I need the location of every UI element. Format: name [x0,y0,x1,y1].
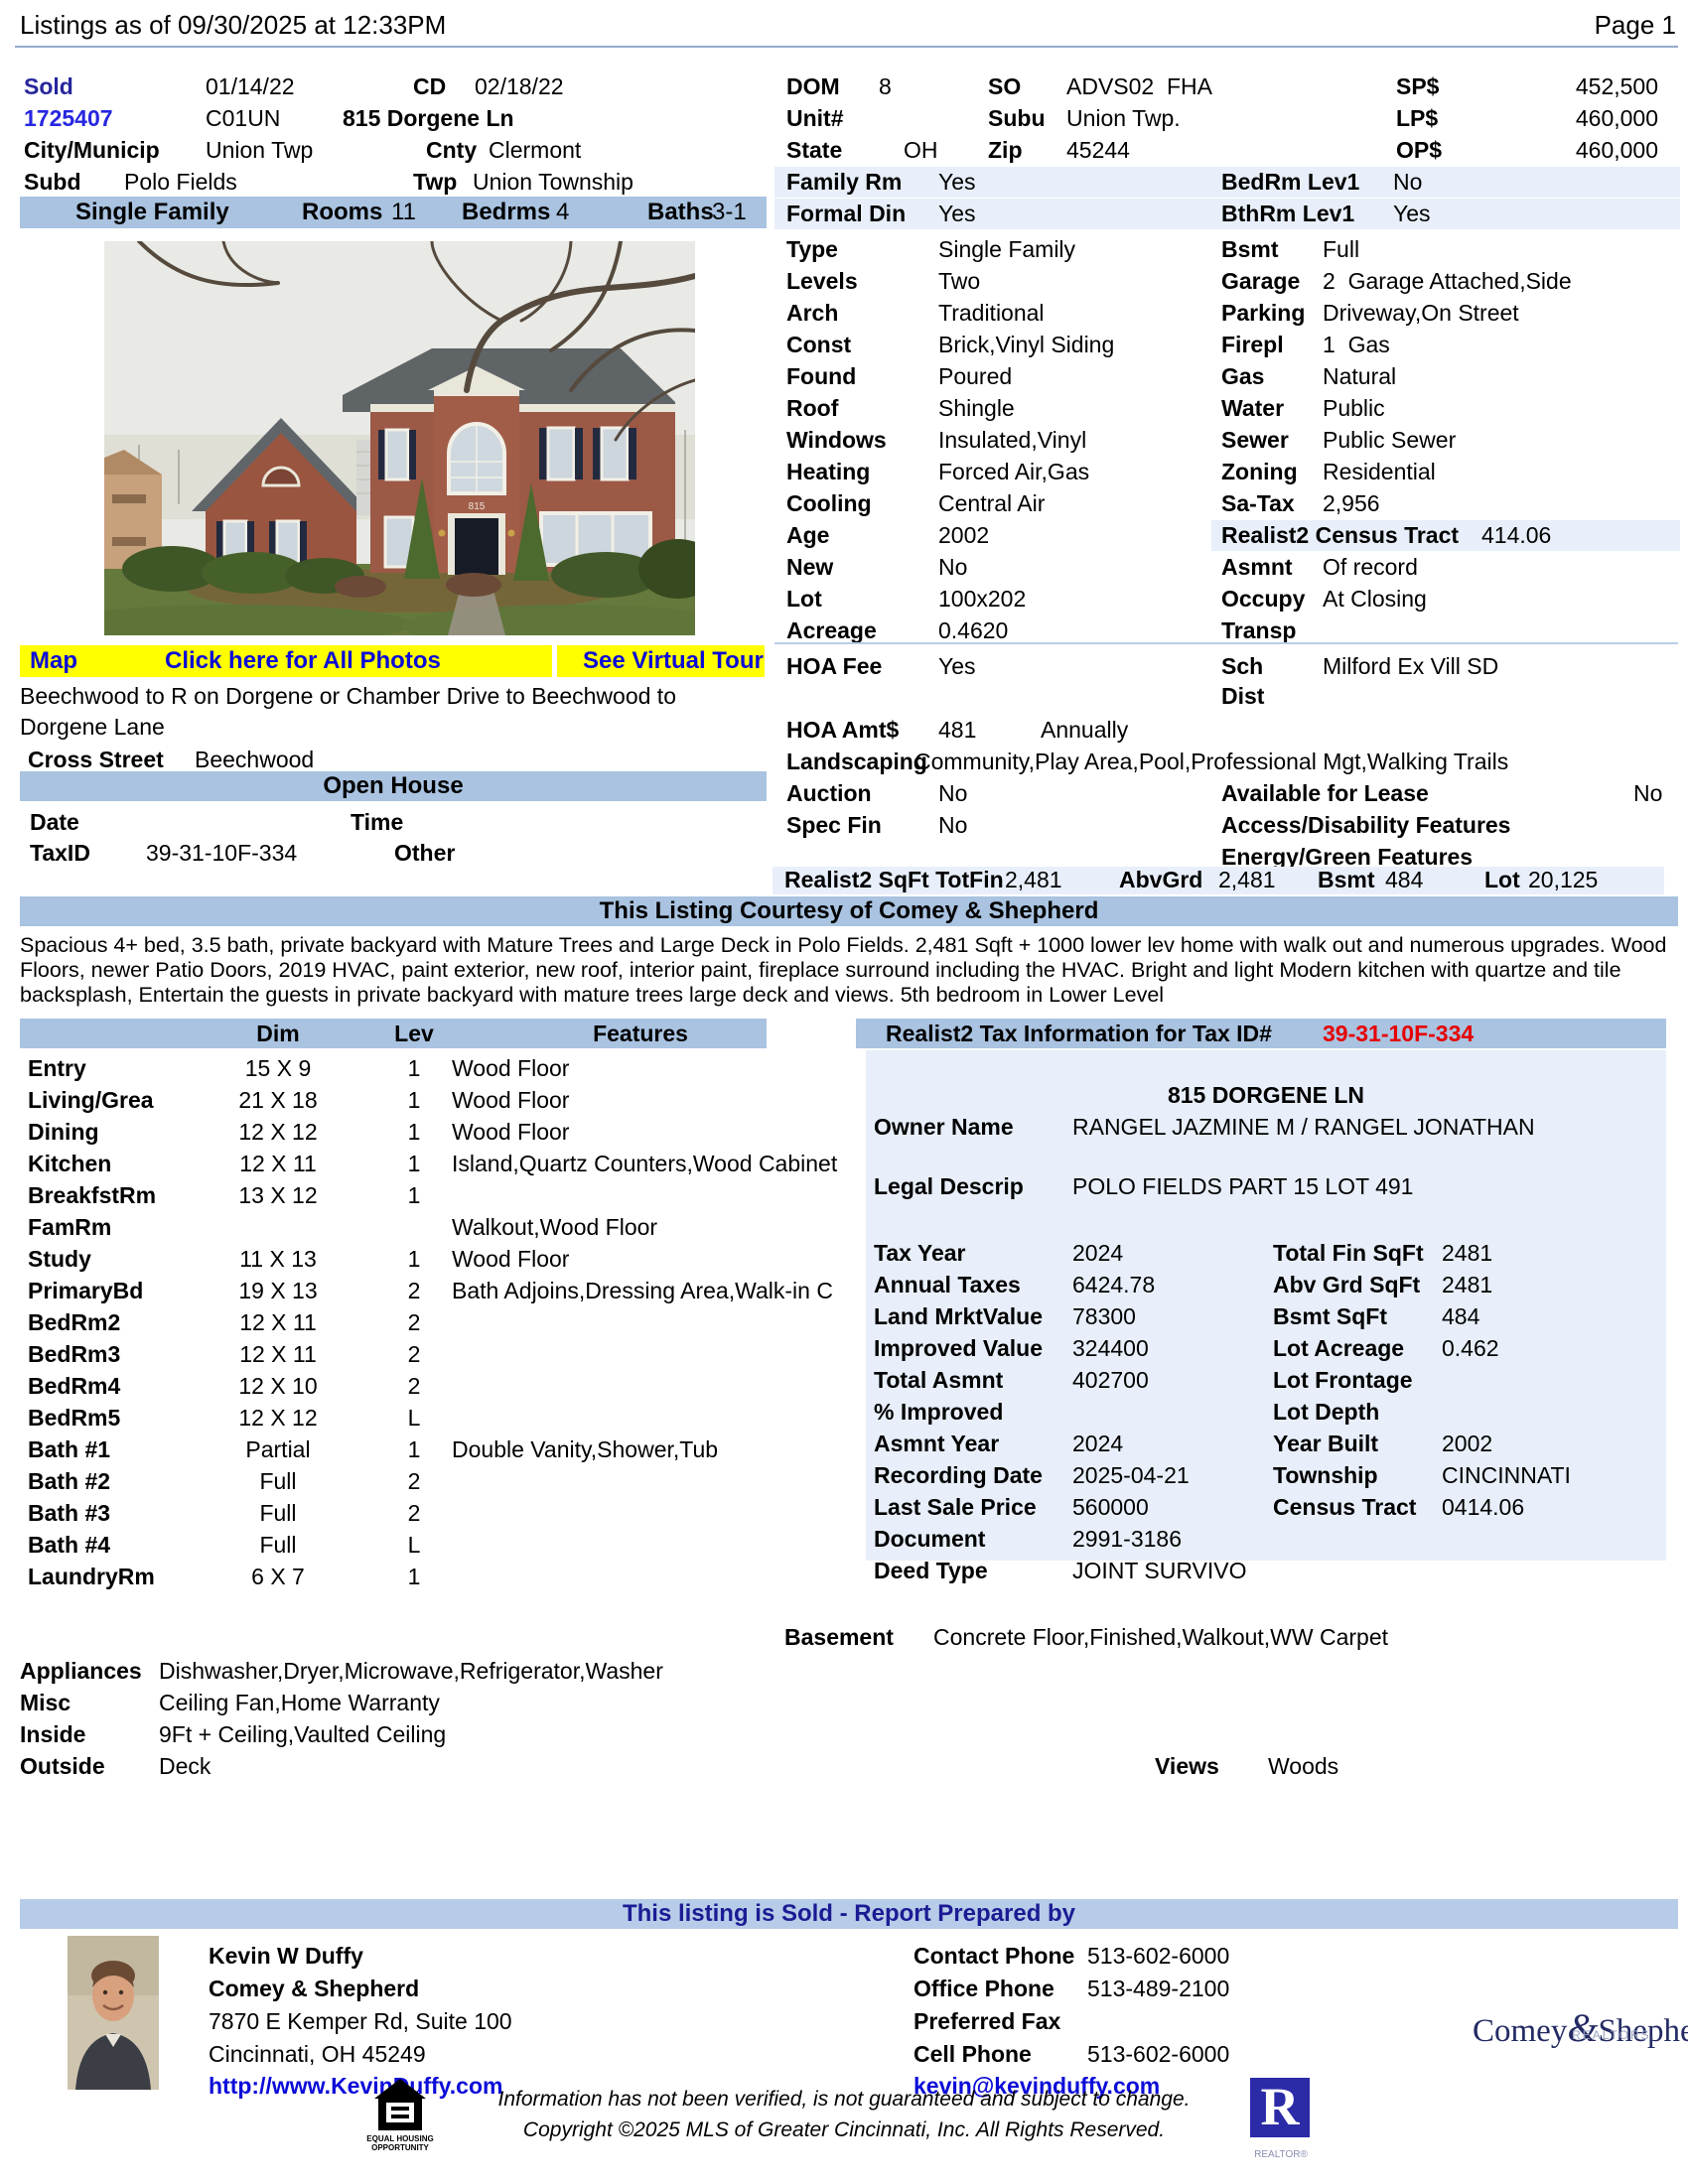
twp-value: Union Township [473,167,633,197]
field-label: Dining [28,1116,99,1148]
specfin-value: No [938,810,967,840]
field-value: 12 X 12 [159,1116,397,1148]
open-house-title: Open House [323,770,463,802]
room-row: BedRm412 X 102 [20,1370,767,1402]
area-code: C01UN [206,103,280,133]
page-number: Page 1 [1595,10,1676,40]
field-value: 1 [389,1179,439,1211]
tax-row: Abv Grd SqFt2481 [866,1269,1666,1300]
right-panel-row: Lot100x202OccupyAt Closing [774,584,1680,614]
auction-label: Auction [786,778,872,808]
tax-info-header: Realist2 Tax Information for Tax ID# 39-… [856,1019,1666,1048]
so-value: ADVS02 FHA [1066,71,1212,101]
right-panel-row: ArchTraditionalParkingDriveway,On Street [774,298,1680,329]
field-value: Partial [159,1433,397,1465]
field-value: Residential [1323,457,1436,487]
zip-value: 45244 [1066,135,1130,165]
field-value: 2481 [1442,1237,1492,1269]
city-value: Union Twp [206,135,313,165]
header-rule [15,46,1678,48]
field-value: Natural [1323,361,1396,392]
dom-value: 8 [879,71,892,101]
landscaping-label: Landscaping [786,747,927,776]
field-value: Shingle [938,393,1015,424]
field-label: Levels [786,266,858,297]
field-label: PrimaryBd [28,1275,143,1306]
room-row: PrimaryBd19 X 132Bath Adjoins,Dressing A… [20,1275,767,1306]
field-label: Bath #4 [28,1529,110,1561]
right-panel-row: Formal DinYesBthRm Lev1Yes [774,199,1680,229]
field-value: 1 [389,1116,439,1148]
legal-descrip-value: POLO FIELDS PART 15 LOT 491 [1072,1171,1413,1201]
field-label: Bath #2 [28,1465,110,1497]
photo-links-bar: Map Click here for All Photos See Virtua… [20,645,765,677]
field-value: 484 [1442,1300,1479,1332]
field-label: Entry [28,1052,86,1084]
realtor-logo: R [1249,2077,1311,2138]
hoa-divider [774,642,1678,644]
field-label: BedRm Lev1 [1221,167,1359,198]
open-house-band: Open House [20,771,767,801]
courtesy-text: This Listing Courtesy of Comey & Shepher… [600,895,1099,927]
field-label: Total Fin SqFt [1273,1237,1424,1269]
subd-value: Polo Fields [124,167,237,197]
open-house-date-label: Date [30,807,79,837]
room-row: FamRmWalkout,Wood Floor [20,1211,767,1243]
state-value: OH [904,135,938,165]
room-row: Entry15 X 91Wood Floor [20,1052,767,1084]
all-photos-link[interactable]: Click here for All Photos [165,645,441,677]
field-label: Bsmt [1221,234,1279,265]
agent-photo [68,1936,159,2090]
mls-number-link[interactable]: 1725407 [24,103,113,133]
tax-row: Lot Depth [866,1396,1666,1428]
field-label: Living/Grea [28,1084,154,1116]
inside-label: Inside [20,1719,85,1749]
agency-address2: Cincinnati, OH 45249 [209,2039,426,2069]
svg-text:R: R [1261,2077,1301,2136]
cd-date: 02/18/22 [475,71,564,101]
field-value: 2 [389,1497,439,1529]
field-label: Formal Din [786,199,906,229]
right-panel-row: HeatingForced Air,GasZoningResidential [774,457,1680,487]
cross-street-label: Cross Street [28,745,164,774]
field-label: BthRm Lev1 [1221,199,1354,229]
room-row: Kitchen12 X 111Island,Quartz Counters,Wo… [20,1148,767,1179]
field-label: Cooling [786,488,872,519]
field-value: 2 [389,1338,439,1370]
field-label: Bsmt SqFt [1273,1300,1387,1332]
field-value: 1 [389,1433,439,1465]
right-panel-row: WindowsInsulated,VinylSewerPublic Sewer [774,425,1680,456]
subd-label: Subd [24,167,81,197]
op-value: 460,000 [1519,135,1658,165]
state-label: State [786,135,842,165]
field-label: Abv Grd SqFt [1273,1269,1420,1300]
cross-street-value: Beechwood [195,745,314,774]
remarks-text: Spacious 4+ bed, 3.5 bath, private backy… [20,933,1670,1008]
status-badge: Sold [24,71,73,101]
field-value: 2481 [1442,1269,1492,1300]
lease-value: No [1633,778,1662,808]
field-label: Lot Acreage [1273,1332,1404,1364]
tax-row: TownshipCINCINNATI [866,1459,1666,1491]
right-panel-row: LevelsTwoGarage2 Garage Attached,Side [774,266,1680,297]
views-label: Views [1155,1751,1219,1781]
field-value: L [389,1529,439,1561]
right-panel-row: Age2002Realist2 Census Tract414.06 [774,520,1680,551]
field-value: Traditional [938,298,1045,329]
field-value: 11 X 13 [159,1243,397,1275]
field-value: Yes [1393,199,1431,229]
outside-label: Outside [20,1751,105,1781]
county-label: Cnty [426,135,477,165]
bsmt-sqft-value: 484 [1385,865,1423,894]
field-value: Insulated,Vinyl [938,425,1086,456]
subu-value: Union Twp. [1066,103,1181,133]
rooms-value: 11 [391,197,416,228]
field-value: Wood Floor [452,1052,569,1084]
tax-info-taxid: 39-31-10F-334 [1323,1019,1474,1048]
field-value: Brick,Vinyl Siding [938,330,1114,360]
field-value: 2002 [938,520,989,551]
field-value: 2002 [1442,1428,1492,1459]
tax-row: Year Built2002 [866,1428,1666,1459]
field-label: Document [874,1523,985,1555]
room-row: BedRm312 X 112 [20,1338,767,1370]
field-label: Zoning [1221,457,1298,487]
sqft-totfin: 2,481 [1005,865,1062,894]
agency-name: Comey & Shepherd [209,1974,419,2003]
property-type-band: Single Family Rooms 11 Bedrms 4 Baths 3-… [20,197,767,228]
field-value: Wood Floor [452,1243,569,1275]
field-label: Sa-Tax [1221,488,1295,519]
room-row: BedRm512 X 12L [20,1402,767,1433]
mls-listing-page: Listings as of 09/30/2025 at 12:33PM Pag… [0,0,1688,2184]
baths-label: Baths [647,197,714,228]
field-value: 100x202 [938,584,1026,614]
sp-value: 452,500 [1519,71,1658,101]
city-label: City/Municip [24,135,160,165]
views-value: Woods [1268,1751,1338,1781]
field-value: 13 X 12 [159,1179,397,1211]
realtor-caption: REALTOR® [1241,2140,1321,2170]
room-row: Bath #3Full2 [20,1497,767,1529]
lease-label: Available for Lease [1221,778,1429,808]
field-label: Realist2 Census Tract [1221,520,1459,551]
field-value: CINCINNATI [1442,1459,1571,1491]
field-value: JOINT SURVIVO [1072,1555,1247,1586]
bar-divider [552,645,557,677]
field-value: 6 X 7 [159,1561,397,1592]
room-row: Dining12 X 121Wood Floor [20,1116,767,1148]
tax-row: Census Tract0414.06 [866,1491,1666,1523]
tax-row: Deed TypeJOINT SURVIVO [866,1555,1666,1586]
fax-label: Preferred Fax [914,2006,1060,2036]
field-value: Yes [938,167,976,198]
tax-row: Lot Frontage [866,1364,1666,1396]
virtual-tour-link[interactable]: See Virtual Tour [583,645,764,677]
field-label: Heating [786,457,870,487]
rooms-label: Rooms [302,197,382,228]
school-value: Milford Ex Vill SD [1323,651,1498,681]
tax-row: Document2991-3186 [866,1523,1666,1555]
field-label: Windows [786,425,887,456]
field-value: Island,Quartz Counters,Wood Cabinet [452,1148,837,1179]
owner-name-value: RANGEL JAZMINE M / RANGEL JONATHAN [1072,1112,1535,1142]
field-value: 2 [389,1275,439,1306]
field-label: Deed Type [874,1555,988,1586]
field-value: 0414.06 [1442,1491,1524,1523]
report-prepared-band: This listing is Sold - Report Prepared b… [20,1899,1678,1929]
inside-value: 9Ft + Ceiling,Vaulted Ceiling [159,1719,446,1749]
appliances-label: Appliances [20,1656,142,1686]
field-label: Bath #1 [28,1433,110,1465]
tax-info-panel: 815 DORGENE LN Owner Name RANGEL JAZMINE… [866,1050,1666,1561]
subu-label: Subu [988,103,1046,133]
hoa-amt-label: HOA Amt$ [786,715,899,745]
field-value: Two [938,266,980,297]
room-row: Bath #1Partial1Double Vanity,Shower,Tub [20,1433,767,1465]
bsmt-sqft-label: Bsmt [1318,865,1375,894]
field-value: Full [1323,234,1359,265]
map-link[interactable]: Map [30,645,77,677]
hoa-fee-value: Yes [938,651,976,681]
field-value: 2 [389,1370,439,1402]
field-label: Roof [786,393,838,424]
right-panel-row: Family RmYesBedRm Lev1No [774,167,1680,198]
taxid-label: TaxID [30,838,90,868]
op-label: OP$ [1396,135,1442,165]
field-label: Firepl [1221,330,1284,360]
field-value: Full [159,1497,397,1529]
field-value: 1 Gas [1323,330,1390,360]
room-row: Living/Grea21 X 181Wood Floor [20,1084,767,1116]
tax-row: Bsmt SqFt484 [866,1300,1666,1332]
field-value: Forced Air,Gas [938,457,1089,487]
field-value: 15 X 9 [159,1052,397,1084]
right-panel-row: ConstBrick,Vinyl SidingFirepl1 Gas [774,330,1680,360]
agency-address1: 7870 E Kemper Rd, Suite 100 [209,2006,512,2036]
right-panel-row: FoundPouredGasNatural [774,361,1680,392]
field-label: Year Built [1273,1428,1378,1459]
contact-phone-value: 513-602-6000 [1087,1941,1229,1971]
office-phone-value: 513-489-2100 [1087,1974,1229,2003]
abvgrd-value: 2,481 [1218,865,1276,894]
dim-header: Dim [159,1019,397,1048]
field-label: Lot Frontage [1273,1364,1413,1396]
dom-label: DOM [786,71,840,101]
field-value: Public Sewer [1323,425,1456,456]
hoa-amt-value: 481 [938,715,976,745]
outside-value: Deck [159,1751,211,1781]
misc-value: Ceiling Fan,Home Warranty [159,1688,440,1717]
zip-label: Zip [988,135,1023,165]
field-value: Of record [1323,552,1418,583]
field-label: Garage [1221,266,1300,297]
lot-sqft-label: Lot [1484,865,1520,894]
field-label: Parking [1221,298,1305,329]
sp-label: SP$ [1396,71,1439,101]
basement-value: Concrete Floor,Finished,Walkout,WW Carpe… [933,1622,1388,1652]
field-label: LaundryRm [28,1561,155,1592]
field-value: Poured [938,361,1012,392]
tax-site-address: 815 DORGENE LN [866,1080,1666,1110]
field-label: Sewer [1221,425,1289,456]
brand-realtors-caption: REALTORS. [1440,2020,1656,2050]
field-value: 1 [389,1084,439,1116]
field-label: Gas [1221,361,1264,392]
so-label: SO [988,71,1021,101]
open-house-time-label: Time [351,807,403,837]
field-value: No [938,552,967,583]
field-label: Study [28,1243,91,1275]
access-features-label: Access/Disability Features [1221,810,1510,840]
field-value: Walkout,Wood Floor [452,1211,657,1243]
field-value: Single Family [938,234,1075,265]
owner-name-label: Owner Name [874,1112,1014,1142]
field-value: No [1393,167,1422,198]
field-value: Bath Adjoins,Dressing Area,Walk-in C [452,1275,833,1306]
hoa-fee-label: HOA Fee [786,651,882,681]
appliances-value: Dishwasher,Dryer,Microwave,Refrigerator,… [159,1656,663,1686]
hoa-amt-freq: Annually [1041,715,1128,745]
field-value: 1 [389,1052,439,1084]
field-value: Yes [938,199,976,229]
report-prepared-text: This listing is Sold - Report Prepared b… [623,1898,1075,1930]
field-label: Family Rm [786,167,902,198]
field-label: BedRm2 [28,1306,120,1338]
field-label: Lot [786,584,822,614]
lp-label: LP$ [1396,103,1438,133]
bedrms-label: Bedrms [462,197,550,228]
tax-info-title: Realist2 Tax Information for Tax ID# [886,1019,1278,1048]
svg-text:815: 815 [469,501,486,512]
field-value: 19 X 13 [159,1275,397,1306]
field-value: At Closing [1323,584,1427,614]
field-label: BreakfstRm [28,1179,156,1211]
field-label: Found [786,361,856,392]
field-value: Double Vanity,Shower,Tub [452,1433,718,1465]
field-value: 12 X 12 [159,1402,397,1433]
field-value: 12 X 11 [159,1338,397,1370]
field-value: 2 [389,1306,439,1338]
other-label: Other [394,838,455,868]
room-row: Study11 X 131Wood Floor [20,1243,767,1275]
landscaping-value: Community,Play Area,Pool,Professional Mg… [914,747,1508,776]
right-panel-row: TypeSingle FamilyBsmtFull [774,234,1680,265]
type-value: Single Family [75,197,229,228]
lev-header: Lev [389,1019,439,1048]
field-label: BedRm3 [28,1338,120,1370]
legal-descrip-label: Legal Descrip [874,1171,1024,1201]
cd-label: CD [413,71,446,101]
sqft-label: Realist2 SqFt TotFin [784,865,1004,894]
field-value: 1 [389,1148,439,1179]
right-panel-row: RoofShingleWaterPublic [774,393,1680,424]
field-value: 0.462 [1442,1332,1499,1364]
field-value: 21 X 18 [159,1084,397,1116]
field-label: Const [786,330,851,360]
field-value: Full [159,1465,397,1497]
field-value: 12 X 11 [159,1148,397,1179]
specfin-label: Spec Fin [786,810,882,840]
field-label: Lot Depth [1273,1396,1379,1428]
taxid-value: 39-31-10F-334 [146,838,297,868]
field-value: 2 Garage Attached,Side [1323,266,1572,297]
field-value: Wood Floor [452,1116,569,1148]
field-value: 414.06 [1481,520,1551,551]
field-label: Occupy [1221,584,1305,614]
field-value: 2991-3186 [1072,1523,1182,1555]
field-value: Driveway,On Street [1323,298,1519,329]
list-date: 01/14/22 [206,71,295,101]
features-header: Features [452,1019,829,1048]
room-row: BedRm212 X 112 [20,1306,767,1338]
lot-sqft-value: 20,125 [1528,865,1598,894]
field-label: BedRm4 [28,1370,120,1402]
listing-photo: 815 [104,241,695,635]
field-value: Wood Floor [452,1084,569,1116]
right-panel-row: CoolingCentral AirSa-Tax2,956 [774,488,1680,519]
county-value: Clermont [489,135,581,165]
field-value: L [389,1402,439,1433]
field-value: Full [159,1529,397,1561]
agent-name: Kevin W Duffy [209,1941,363,1971]
cell-phone-value: 513-602-6000 [1087,2039,1229,2069]
driving-directions: Beechwood to R on Dorgene or Chamber Dri… [20,681,755,743]
field-value: 2,956 [1323,488,1380,519]
courtesy-band: This Listing Courtesy of Comey & Shepher… [20,896,1678,926]
cell-phone-label: Cell Phone [914,2039,1032,2069]
twp-label: Twp [413,167,457,197]
field-value: 1 [389,1561,439,1592]
unit-label: Unit# [786,103,844,133]
field-value: 12 X 11 [159,1306,397,1338]
field-value: 1 [389,1243,439,1275]
field-label: FamRm [28,1211,111,1243]
field-label: Age [786,520,829,551]
office-phone-label: Office Phone [914,1974,1055,2003]
lp-value: 460,000 [1519,103,1658,133]
report-timestamp: Listings as of 09/30/2025 at 12:33PM [20,10,446,40]
field-label: Water [1221,393,1284,424]
basement-label: Basement [784,1622,894,1652]
field-value: 2 [389,1465,439,1497]
field-label: Kitchen [28,1148,111,1179]
room-table-header: Dim Lev Features [20,1019,767,1048]
room-row: Bath #4FullL [20,1529,767,1561]
field-value: Central Air [938,488,1045,519]
field-label: Census Tract [1273,1491,1416,1523]
field-label: New [786,552,833,583]
field-label: Type [786,234,838,265]
room-row: BreakfstRm13 X 121 [20,1179,767,1211]
school-dist-label: Dist [1221,681,1264,711]
misc-label: Misc [20,1688,70,1717]
room-row: LaundryRm6 X 71 [20,1561,767,1592]
field-value: Public [1323,393,1385,424]
field-label: Township [1273,1459,1378,1491]
right-panel-row: NewNoAsmntOf record [774,552,1680,583]
field-label: BedRm5 [28,1402,120,1433]
property-address: 815 Dorgene Ln [343,103,514,133]
tax-row: Lot Acreage0.462 [866,1332,1666,1364]
room-row: Bath #2Full2 [20,1465,767,1497]
baths-value: 3-1 [712,197,747,228]
tax-row: Total Fin SqFt2481 [866,1237,1666,1269]
bedrms-value: 4 [556,197,569,228]
